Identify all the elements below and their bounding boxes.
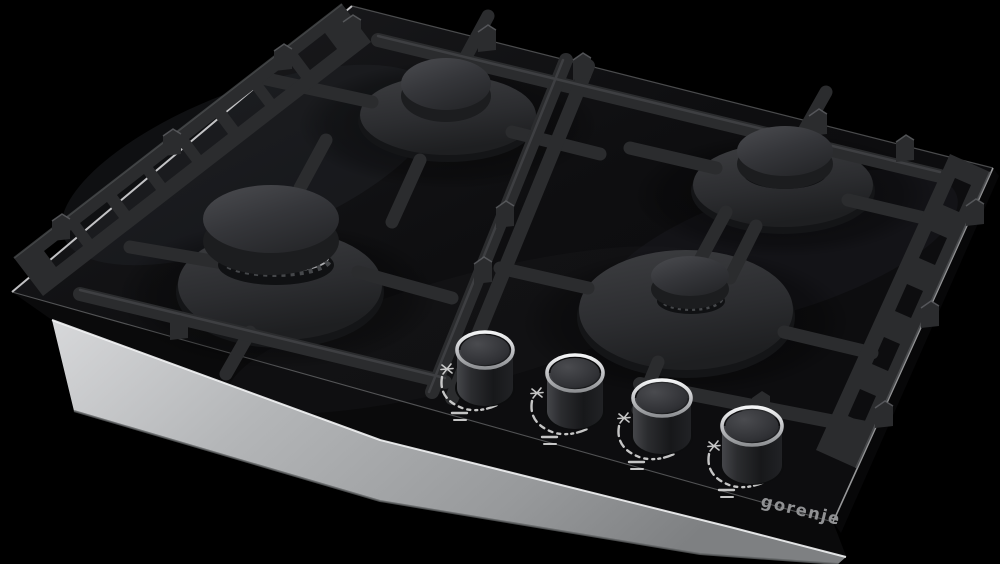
burner-cap: [737, 126, 833, 176]
burner-rear-left: [401, 58, 491, 122]
burner-cap: [651, 256, 729, 296]
knob-2: [545, 355, 605, 430]
knob-top: [637, 383, 688, 413]
burner-cap: [203, 185, 339, 253]
knob-1: [455, 332, 515, 407]
product-photo-gas-hob: gorenje: [0, 0, 1000, 564]
burner-rear-right: [737, 126, 833, 189]
knob-3: [631, 380, 693, 455]
burner-cap: [401, 58, 491, 110]
gas-hob-render: gorenje: [0, 0, 1000, 564]
knob-4: [720, 407, 784, 485]
burner-front-right: [651, 256, 729, 314]
burner-front-left: [203, 185, 339, 285]
knob-top: [461, 335, 510, 365]
knob-top: [551, 358, 600, 388]
knob-top: [726, 410, 779, 442]
